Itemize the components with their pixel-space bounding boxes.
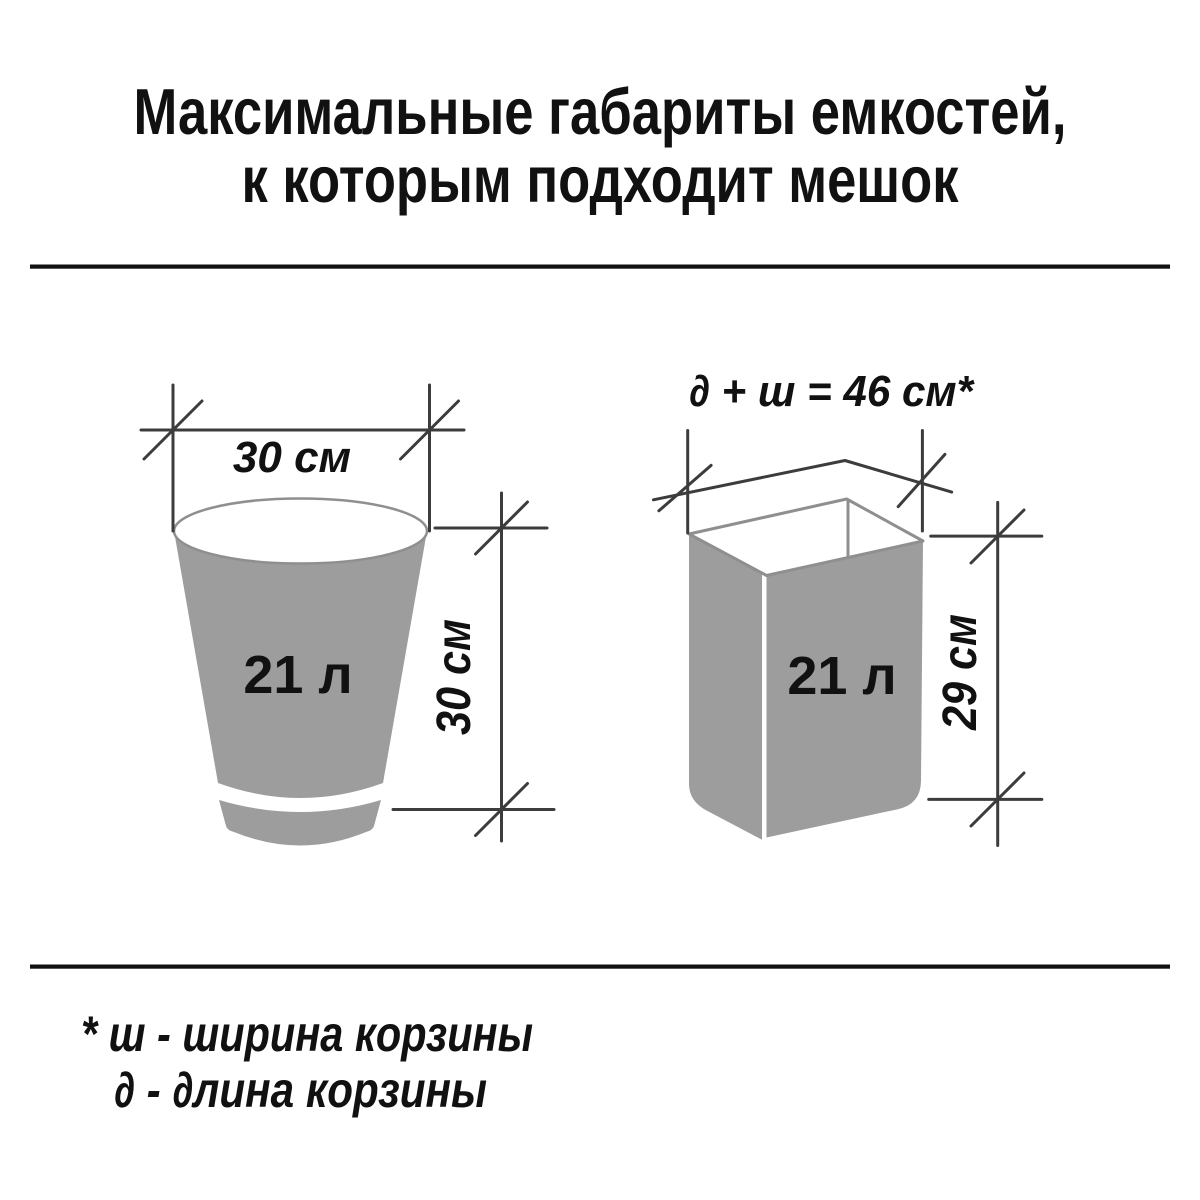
svg-text:* ш - ширина корзины: * ш - ширина корзины bbox=[81, 1006, 533, 1062]
svg-text:21 л: 21 л bbox=[787, 646, 896, 706]
svg-text:Максимальные габариты емкостей: Максимальные габариты емкостей, bbox=[134, 75, 1067, 148]
svg-text:30 см: 30 см bbox=[233, 433, 351, 482]
svg-text:к которым подходит мешок: к которым подходит мешок bbox=[242, 143, 959, 216]
svg-text:∂ + ш = 46 см*: ∂ + ш = 46 см* bbox=[689, 367, 975, 416]
svg-text:∂ - ∂лина корзины: ∂ - ∂лина корзины bbox=[114, 1062, 487, 1118]
svg-text:30 см: 30 см bbox=[428, 619, 481, 735]
svg-text:21 л: 21 л bbox=[243, 645, 352, 705]
svg-text:29 см: 29 см bbox=[934, 614, 987, 731]
